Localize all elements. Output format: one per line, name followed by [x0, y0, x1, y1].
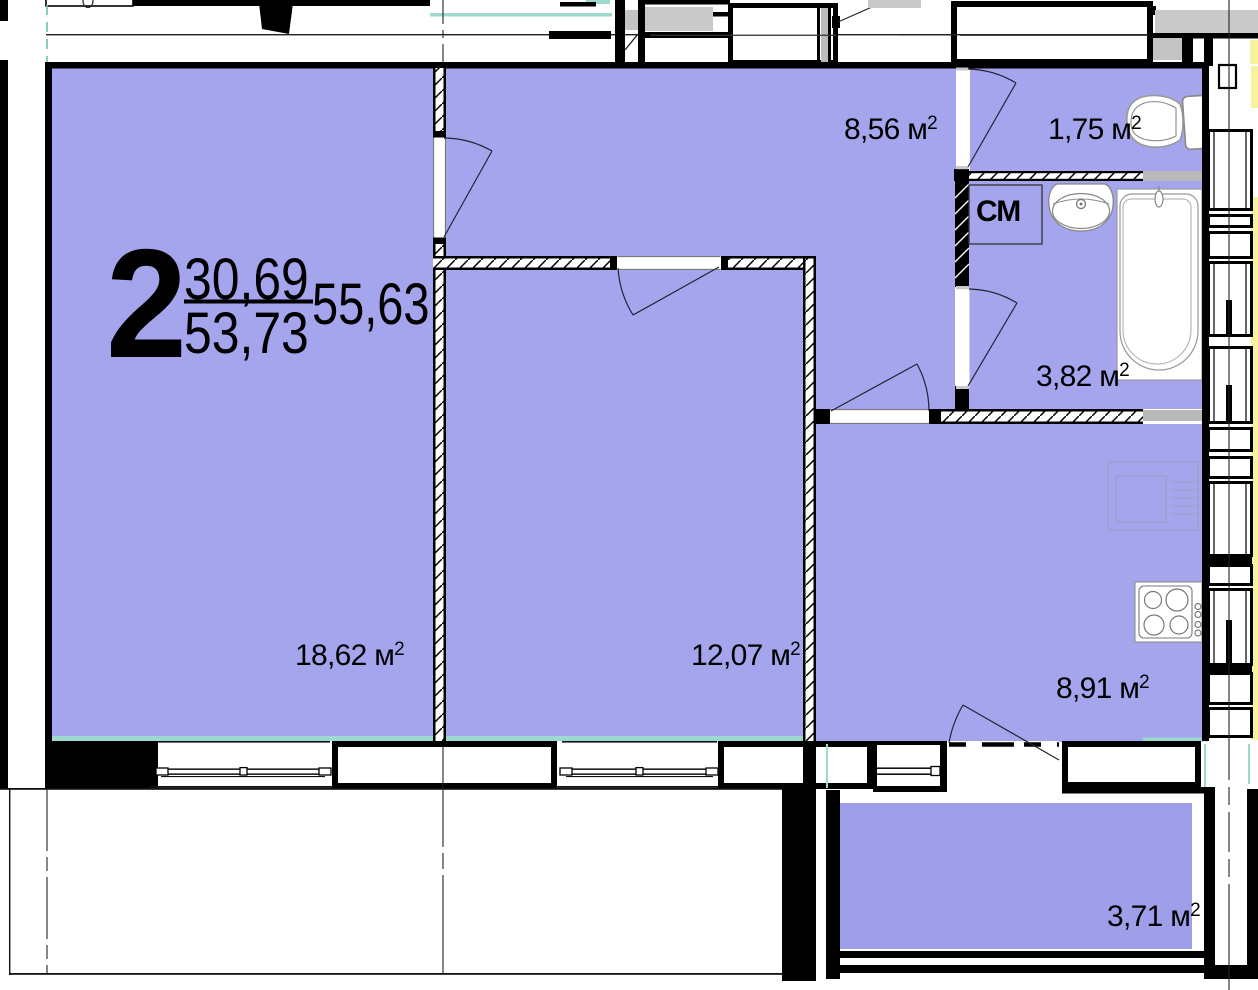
svg-text:8,91 м2: 8,91 м2: [1056, 672, 1149, 705]
svg-text:12,07 м2: 12,07 м2: [691, 639, 800, 672]
svg-text:3,82 м2: 3,82 м2: [1036, 360, 1129, 393]
svg-text:18,62 м2: 18,62 м2: [295, 639, 404, 672]
svg-text:2: 2: [106, 217, 187, 390]
svg-text:55,63: 55,63: [312, 272, 430, 337]
svg-text:53,73: 53,73: [184, 302, 309, 366]
svg-text:СМ: СМ: [976, 195, 1020, 228]
svg-text:3,71 м2: 3,71 м2: [1107, 900, 1200, 933]
svg-text:8,56 м2: 8,56 м2: [844, 113, 937, 146]
svg-text:1,75 м2: 1,75 м2: [1048, 113, 1141, 146]
